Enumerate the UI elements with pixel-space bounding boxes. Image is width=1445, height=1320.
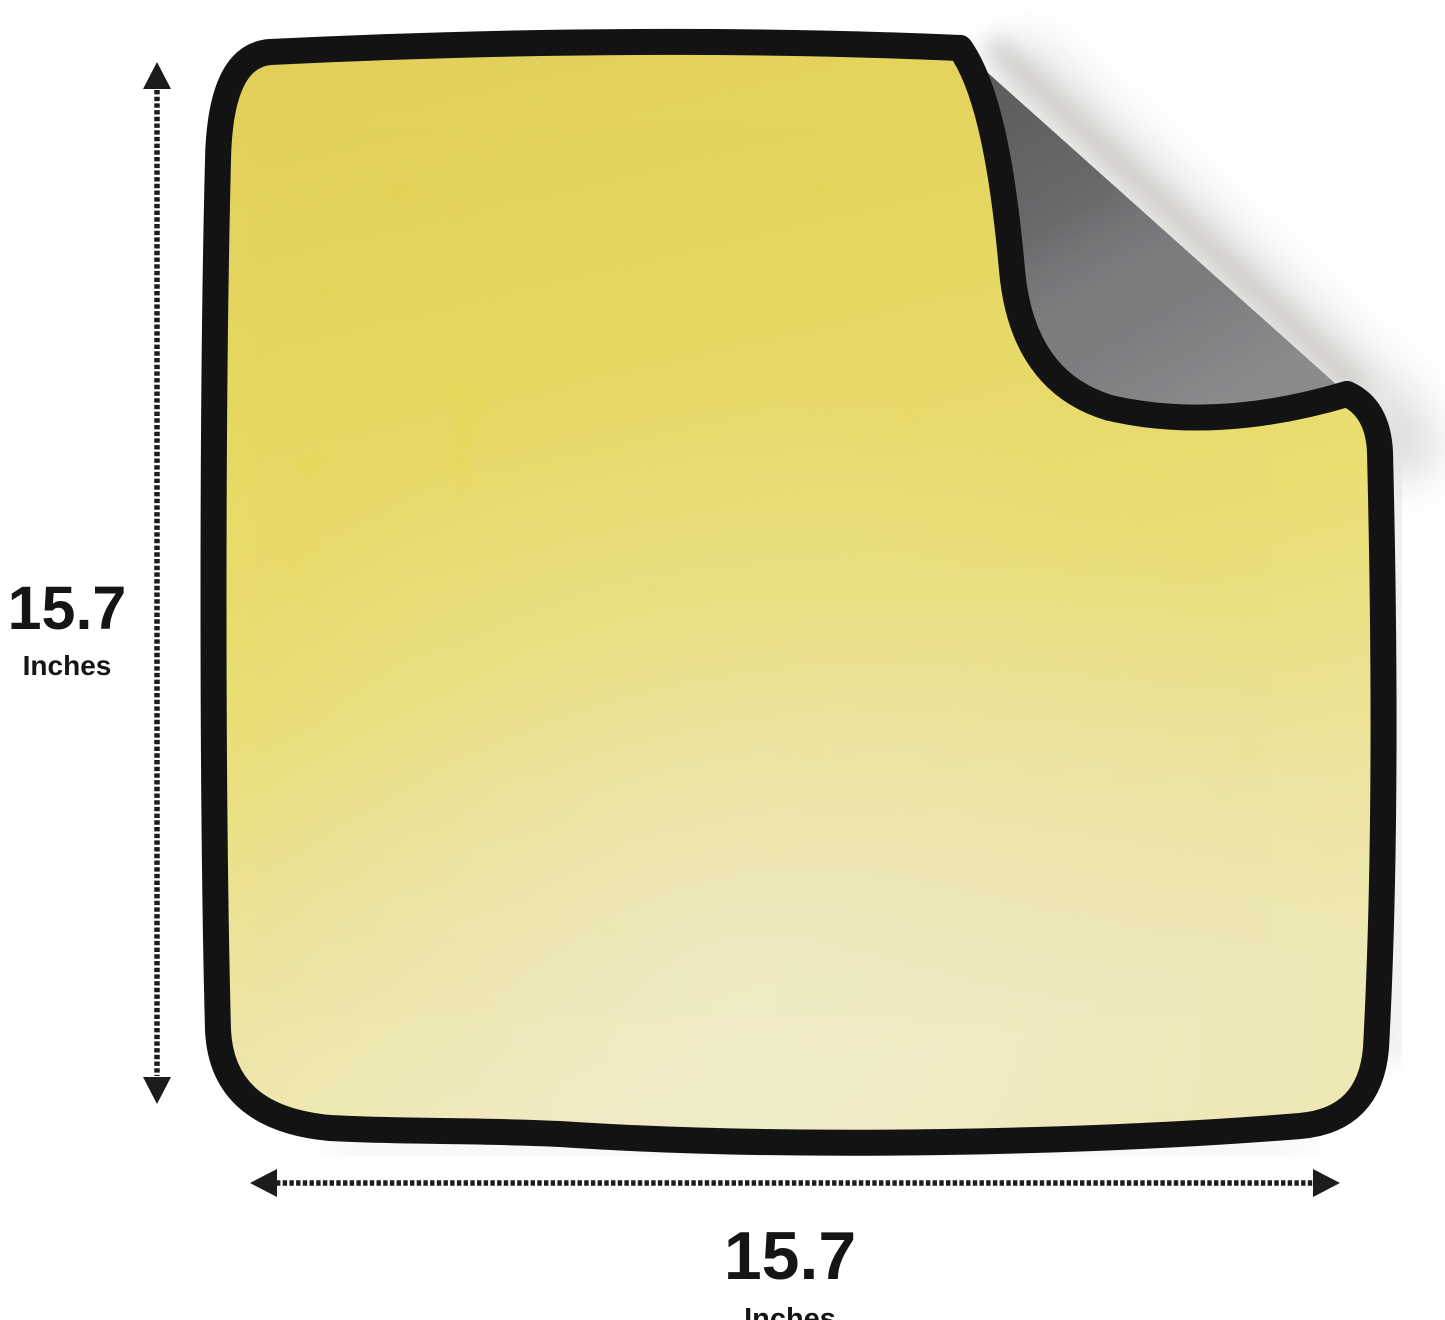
height-dimension-label: 15.7 Inches [0,578,134,680]
width-unit: Inches [698,1305,882,1320]
width-arrow [250,1169,1340,1197]
arrowhead-right-icon [1313,1169,1340,1197]
product-dimension-image: 15.7 Inches 15.7 Inches [0,0,1445,1320]
towel-photo [0,0,1445,1320]
height-unit: Inches [0,652,134,680]
height-value: 15.7 [0,578,134,639]
width-value: 15.7 [698,1222,882,1290]
height-arrow [143,62,171,1104]
towel-front-texture [200,20,1400,1160]
width-dimension-label: 15.7 Inches [698,1222,882,1320]
arrowhead-down-icon [143,1077,171,1104]
arrowhead-left-icon [250,1169,277,1197]
arrowhead-up-icon [143,62,171,89]
